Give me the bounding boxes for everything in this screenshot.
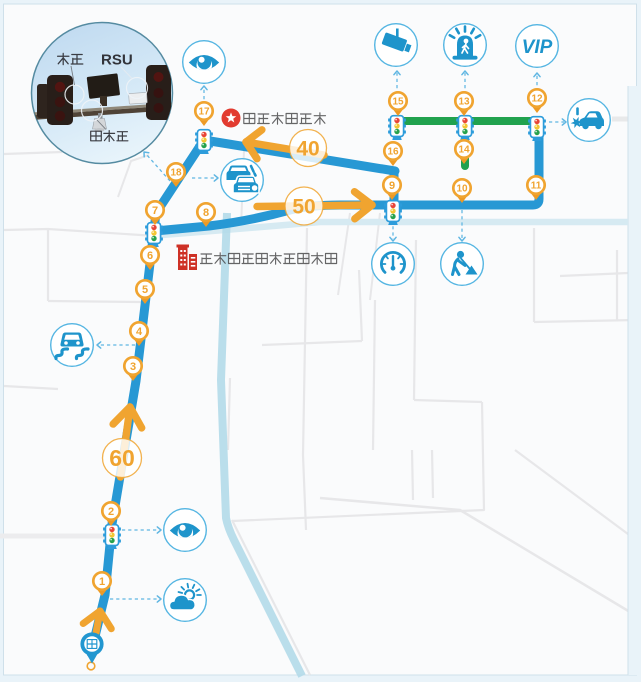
svg-text:12: 12	[531, 94, 543, 105]
svg-text:10: 10	[456, 184, 468, 195]
svg-text:9: 9	[389, 180, 395, 192]
svg-text:VIP: VIP	[522, 37, 553, 58]
svg-text:7: 7	[152, 205, 158, 217]
svg-text:RSU: RSU	[101, 52, 133, 69]
svg-text:50: 50	[292, 195, 315, 218]
svg-text:8: 8	[203, 207, 209, 219]
svg-text:2: 2	[108, 506, 114, 518]
svg-text:14: 14	[458, 145, 470, 156]
svg-text:3: 3	[130, 361, 136, 373]
svg-text:11: 11	[531, 181, 542, 192]
svg-text:4: 4	[136, 326, 143, 338]
svg-text:17: 17	[198, 107, 210, 118]
svg-text:5: 5	[142, 284, 148, 296]
svg-text:60: 60	[109, 445, 135, 471]
svg-text:40: 40	[296, 137, 319, 160]
svg-text:16: 16	[387, 147, 399, 158]
svg-text:15: 15	[392, 97, 404, 108]
svg-text:6: 6	[147, 250, 153, 262]
svg-text:1: 1	[99, 576, 105, 588]
svg-text:18: 18	[170, 168, 182, 179]
svg-text:13: 13	[458, 97, 470, 108]
